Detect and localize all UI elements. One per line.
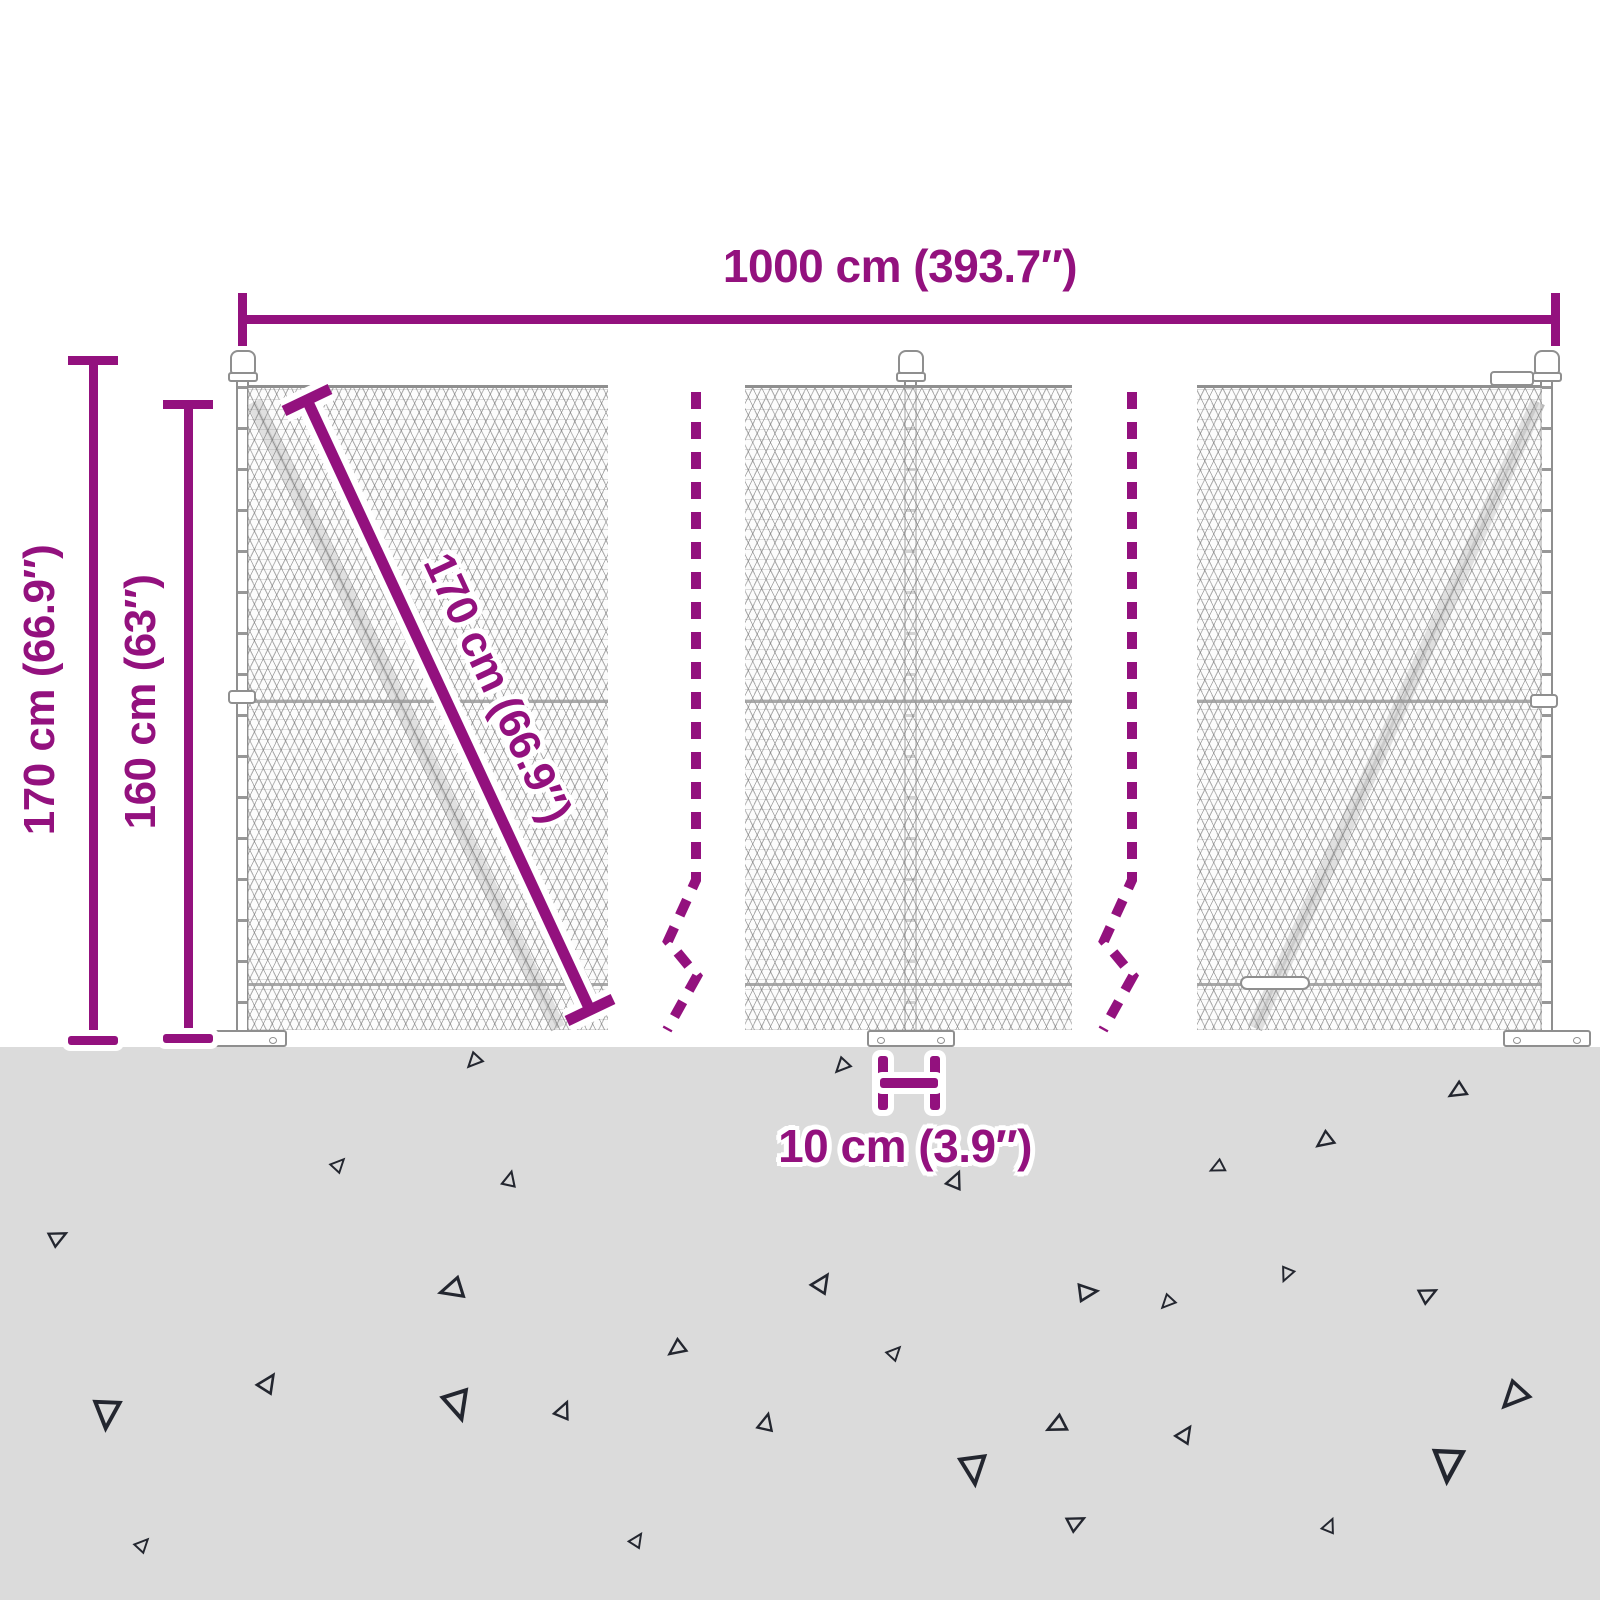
- diagonal-dimension-line: [284, 389, 613, 1021]
- width-dimension-tick-right: [1551, 293, 1560, 346]
- mesh-height-tick-top: [163, 400, 213, 409]
- mesh-height-dimension-label: 160 cm (63″): [116, 575, 166, 830]
- total-height-tick-top: [68, 356, 118, 365]
- continuation-line-right: [1103, 392, 1133, 1030]
- width-dimension-tick-left: [238, 293, 247, 346]
- total-height-dimension-label: 170 cm (66.9″): [15, 545, 65, 835]
- mesh-height-tick-bottom: [163, 1034, 213, 1043]
- continuation-line-left: [667, 392, 697, 1030]
- fence-dimension-diagram: 1000 cm (393.7″) 170 cm (66.9″) 160 cm (…: [0, 0, 1600, 1600]
- spacing-dimension-line: [880, 1078, 938, 1088]
- total-height-tick-bottom: [68, 1036, 118, 1045]
- total-height-dimension-line: [89, 360, 98, 1041]
- width-dimension-label: 1000 cm (393.7″): [723, 239, 1077, 293]
- width-dimension-line: [242, 315, 1556, 324]
- mesh-height-dimension-line: [184, 404, 193, 1039]
- spacing-dimension-label: 10 cm (3.9″): [778, 1119, 1032, 1173]
